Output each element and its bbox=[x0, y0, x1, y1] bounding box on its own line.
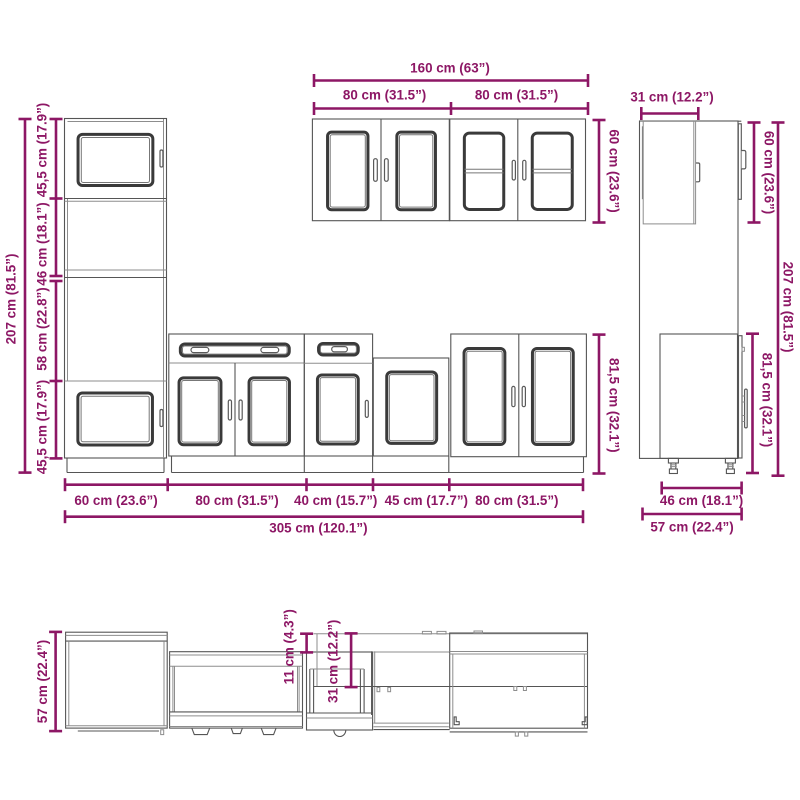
svg-text:80 cm (31.5”): 80 cm (31.5”) bbox=[475, 493, 558, 508]
svg-text:160 cm (63”): 160 cm (63”) bbox=[410, 61, 490, 76]
svg-text:46 cm (18.1”): 46 cm (18.1”) bbox=[35, 202, 50, 285]
svg-text:57 cm (22.4”): 57 cm (22.4”) bbox=[35, 640, 50, 723]
svg-text:45,5 cm (17.9”): 45,5 cm (17.9”) bbox=[35, 103, 50, 198]
svg-text:60 cm (23.6”): 60 cm (23.6”) bbox=[74, 493, 157, 508]
svg-text:60 cm (23.6”): 60 cm (23.6”) bbox=[762, 131, 777, 214]
svg-text:45,5 cm (17.9”): 45,5 cm (17.9”) bbox=[35, 380, 50, 475]
svg-text:31 cm (12.2”): 31 cm (12.2”) bbox=[630, 90, 713, 105]
svg-text:207 cm (81.5”): 207 cm (81.5”) bbox=[4, 254, 19, 345]
svg-text:46 cm (18.1”): 46 cm (18.1”) bbox=[660, 493, 743, 508]
svg-text:31 cm (12.2”): 31 cm (12.2”) bbox=[326, 620, 341, 703]
svg-text:80 cm (31.5”): 80 cm (31.5”) bbox=[343, 88, 426, 103]
svg-text:81,5 cm (32.1”): 81,5 cm (32.1”) bbox=[760, 353, 775, 448]
svg-text:305 cm (120.1”): 305 cm (120.1”) bbox=[269, 521, 367, 536]
svg-text:60 cm (23.6”): 60 cm (23.6”) bbox=[607, 129, 622, 212]
svg-text:45 cm (17.7”): 45 cm (17.7”) bbox=[385, 493, 468, 508]
svg-text:207 cm (81.5”): 207 cm (81.5”) bbox=[781, 262, 796, 353]
svg-text:40 cm (15.7”): 40 cm (15.7”) bbox=[294, 493, 377, 508]
svg-text:58 cm (22.8”): 58 cm (22.8”) bbox=[35, 287, 50, 370]
svg-text:80 cm (31.5”): 80 cm (31.5”) bbox=[475, 88, 558, 103]
svg-text:81,5 cm (32.1”): 81,5 cm (32.1”) bbox=[607, 358, 622, 453]
svg-text:11 cm (4.3”): 11 cm (4.3”) bbox=[282, 609, 297, 684]
svg-text:80 cm (31.5”): 80 cm (31.5”) bbox=[195, 493, 278, 508]
svg-text:57 cm (22.4”): 57 cm (22.4”) bbox=[650, 520, 733, 535]
